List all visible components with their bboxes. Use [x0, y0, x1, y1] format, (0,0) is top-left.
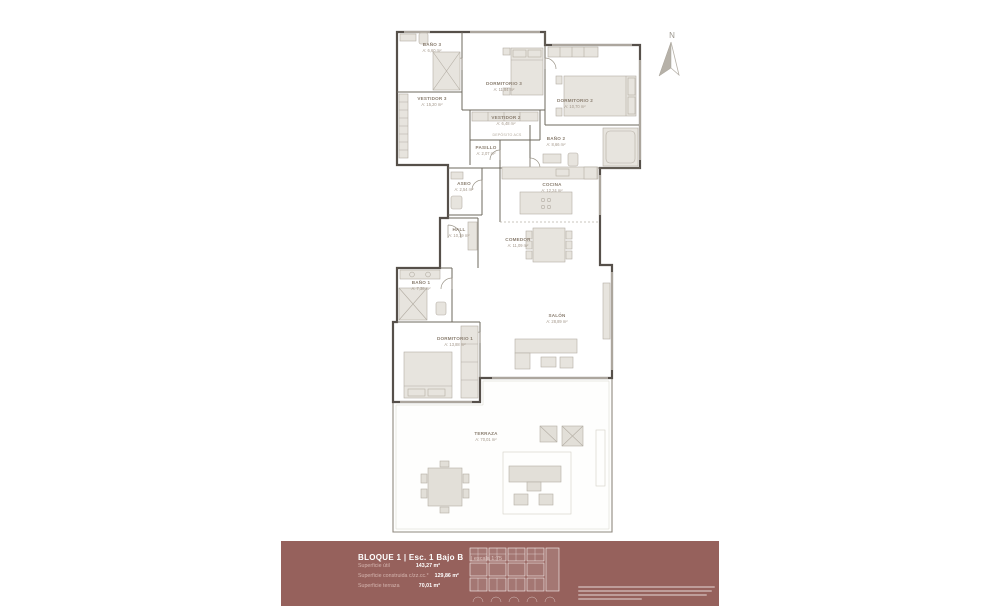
room-area-salon: A: 28,89 m² — [546, 319, 568, 324]
metric-label: Superficie útil — [358, 563, 390, 569]
metric-row-construida: Superficie construida c/zz.cc.* 129,86 m… — [358, 573, 440, 579]
metric-row-util: Superficie útil 143,27 m² — [358, 563, 440, 569]
page: BAÑO 3 A: 6,60 m² DORMITORIO 3 A: 11,84 … — [0, 0, 1001, 606]
north-arrow-icon: N — [659, 31, 679, 76]
room-label-dormitorio1: DORMITORIO 1 — [437, 336, 473, 341]
room-label-deposito-acs: DEPÓSITO ACS — [492, 132, 521, 137]
fine-print — [578, 586, 715, 602]
room-area-dormitorio2: A: 10,70 m² — [564, 104, 586, 109]
room-label-dormitorio3: DORMITORIO 3 — [486, 81, 522, 86]
north-label: N — [669, 31, 675, 40]
room-area-vestidor2: A: 6,48 m² — [497, 121, 517, 126]
dining-table-icon — [526, 228, 572, 262]
info-banner: BLOQUE 1 | Esc. 1 Bajo B | escala 1:75 S… — [281, 541, 719, 606]
room-label-aseo: ASEO — [457, 181, 471, 186]
room-label-bano3: BAÑO 3 — [423, 41, 442, 47]
room-area-aseo: A: 2,54 m² — [455, 187, 475, 192]
room-label-hall: HALL — [452, 227, 465, 232]
building-key-plan — [467, 546, 563, 602]
room-area-hall: A: 10,19 m² — [448, 233, 470, 238]
metric-value: 70,01 m² — [419, 583, 440, 589]
room-label-bano2: BAÑO 2 — [547, 135, 566, 141]
room-area-vestidor3: A: 15,20 m² — [421, 102, 443, 107]
room-label-vestidor2: VESTIDOR 2 — [491, 115, 521, 120]
fine-print-line — [578, 594, 707, 596]
room-area-bano1: A: 7,38 m² — [412, 286, 432, 291]
room-label-bano1: BAÑO 1 — [412, 279, 431, 285]
metric-row-terraza: Superficie terraza 70,01 m² — [358, 583, 440, 589]
metric-label: Superficie terraza — [358, 583, 400, 589]
room-label-dormitorio2: DORMITORIO 2 — [557, 98, 593, 103]
room-area-dormitorio3: A: 11,84 m² — [494, 87, 515, 92]
closet-icon — [399, 94, 408, 158]
room-label-terraza: TERRAZA — [474, 431, 498, 436]
metric-value: 129,86 m² — [435, 573, 459, 579]
fine-print-line — [578, 590, 712, 592]
room-label-comedor: COMEDOR — [505, 237, 531, 242]
room-area-terraza: A: 70,01 m² — [475, 437, 497, 442]
room-label-salon: SALÓN — [548, 311, 566, 318]
surface-metrics: Superficie útil 143,27 m² Superficie con… — [358, 563, 440, 593]
room-area-comedor: A: 11,09 m² — [508, 243, 529, 248]
room-label-vestidor3: VESTIDOR 3 — [417, 96, 447, 101]
floor-plan-svg: BAÑO 3 A: 6,60 m² DORMITORIO 3 A: 11,84 … — [0, 0, 1001, 606]
room-area-bano2: A: 8,66 m² — [547, 142, 567, 147]
fine-print-line — [578, 598, 642, 600]
room-area-dormitorio1: A: 13,88 m² — [444, 342, 466, 347]
room-label-cocina: COCINA — [542, 182, 562, 187]
metric-value: 143,27 m² — [416, 563, 440, 569]
unit-title: BLOQUE 1 | Esc. 1 Bajo B — [358, 553, 463, 562]
room-area-bano3: A: 6,60 m² — [423, 48, 443, 53]
metric-label: Superficie construida c/zz.cc.* — [358, 573, 429, 579]
fine-print-line — [578, 586, 715, 588]
room-label-pasillo: PASILLO — [476, 145, 497, 150]
room-area-pasillo: A: 2,07 m² — [477, 151, 497, 156]
room-area-cocina: A: 12,24 m² — [541, 188, 563, 193]
